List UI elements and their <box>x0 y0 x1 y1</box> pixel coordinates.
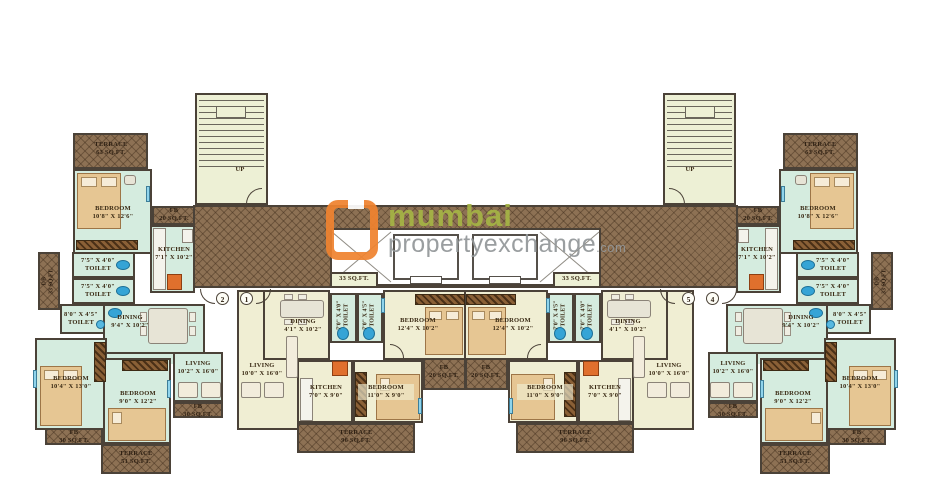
lift-door-left <box>410 276 442 284</box>
fb-30-under-living-left-label: FB30 SQ.FT. <box>178 403 218 419</box>
stove <box>583 361 599 376</box>
wardrobe <box>466 294 516 305</box>
fb-30-under-living-right-label: FB30 SQ.FT. <box>713 403 753 419</box>
stove <box>749 274 764 290</box>
toilet-80-right-label: 8'0" X 4'5"TOILET <box>827 311 873 327</box>
bed <box>108 408 166 441</box>
door-arc-unit-2 <box>200 289 215 304</box>
lift-cabin-left <box>393 234 459 280</box>
toilet-7045-left-label: 7'0" X 4'5"TOILET <box>357 295 383 335</box>
living-right-label: LIVING10'2" X 16'0" <box>710 360 756 376</box>
toilet-7040-right-label: 7'0" X 4'0"TOILET <box>574 295 601 335</box>
bedroom-11-0-right-label: BEDROOM11'0" X 9'0" <box>517 384 573 400</box>
lift-cabin-right <box>472 234 538 280</box>
dining-middle-right-label: DINING4'1" X 10'2" <box>601 318 655 334</box>
bedroom-10-4-left-label: BEDROOM10'4" X 13'0" <box>43 375 99 391</box>
stair-up-label-left: UP <box>228 166 252 174</box>
unit-number-badge-5: 5 <box>682 292 695 305</box>
kitchen-appliance <box>738 229 749 243</box>
wardrobe <box>793 240 855 250</box>
toilet-7040-left-label: 7'0" X 4'0"TOILET <box>330 295 357 335</box>
side-table <box>124 175 136 185</box>
wardrobe <box>415 294 465 305</box>
fb-30-left-edge-label: FB30 SQ.FT. <box>54 429 94 445</box>
kitchen-right-label: KITCHEN7'1" X 10'2" <box>734 246 780 262</box>
bed <box>765 408 823 441</box>
dining-right-label: DINING9'4" X 10'2" <box>779 314 823 330</box>
terrace-63-right-label: TERRACE63 SQ.FT. <box>787 141 853 157</box>
armchair <box>201 382 221 398</box>
window <box>146 186 150 202</box>
armchair <box>241 382 261 398</box>
wardrobe <box>122 360 168 371</box>
bedroom-10-4-right-label: BEDROOM10'4" X 13'0" <box>832 375 888 391</box>
dining-table <box>743 308 783 344</box>
terrace-63-left-label: TERRACE63 SQ.FT. <box>78 141 144 157</box>
armchair <box>670 382 690 398</box>
dining-table <box>280 300 324 318</box>
living-middle-right-label: LIVING10'0" X 16'0" <box>646 362 692 378</box>
unit-number-badge-4: 4 <box>706 292 719 305</box>
bedroom-12-4-right-label: BEDROOM12'4" X 10'2" <box>485 317 541 333</box>
toilet-75-upper-left-label: 7'5" X 4'0"TOILET <box>76 257 120 273</box>
stove <box>332 361 348 376</box>
kitchen-middle-left-label: KITCHEN7'0" X 9'0" <box>302 384 350 400</box>
sofa <box>633 336 645 378</box>
lift-door-right <box>489 276 521 284</box>
window <box>509 398 513 414</box>
armchair <box>647 382 667 398</box>
dining-table <box>148 308 188 344</box>
stair-rail-left <box>216 106 246 118</box>
fb-20-left-label: FB20 SQ.FT. <box>153 207 195 223</box>
bedroom-9-0-left-label: BEDROOM9'0" X 12'2" <box>110 390 166 406</box>
floor-plan: UP UP 33 SQ.FT. 33 SQ.FT. TERRACE63 SQ.F… <box>0 0 931 488</box>
dining-middle-left-label: DINING4'1" X 10'2" <box>276 318 330 334</box>
window <box>33 370 37 388</box>
bedroom-10-8-left-label: BEDROOM10'8" X 12'6" <box>78 205 148 221</box>
door-arc-unit-4 <box>722 289 737 304</box>
stove <box>167 274 182 290</box>
toilet-75-upper-right-label: 7'5" X 4'0"TOILET <box>811 257 855 273</box>
window <box>418 398 422 414</box>
terrace-51-left-label: TERRACE51 SQ.FT. <box>106 450 166 466</box>
toilet-75-lower-right-label: 7'5" X 4'0"TOILET <box>811 283 855 299</box>
lobby-landing-left-label: 33 SQ.FT. <box>331 275 377 283</box>
armchair <box>178 382 198 398</box>
living-left-label: LIVING10'2" X 16'0" <box>175 360 221 376</box>
fb-20-center-right-label: FB20 SQ.FT. <box>466 364 506 380</box>
wardrobe <box>76 240 138 250</box>
fb-20-center-left-label: FB20 SQ.FT. <box>424 364 464 380</box>
stair-up-label-right: UP <box>678 166 702 174</box>
dining-table <box>607 300 651 318</box>
side-table <box>795 175 807 185</box>
kitchen-left-label: KITCHEN7'1" X 10'2" <box>151 246 197 262</box>
armchair <box>733 382 753 398</box>
window <box>781 186 785 202</box>
lobby-landing-right-label: 33 SQ.FT. <box>554 275 600 283</box>
db-left-label: DB33 SQ.FT. <box>36 254 62 308</box>
window <box>760 380 764 398</box>
unit-number-badge-1: 1 <box>240 292 253 305</box>
kitchen-appliance <box>182 229 193 243</box>
bedroom-9-0-right-label: BEDROOM9'0" X 12'2" <box>765 390 821 406</box>
fb-30-right-edge-label: FB30 SQ.FT. <box>837 429 877 445</box>
armchair <box>264 382 284 398</box>
window <box>894 370 898 388</box>
unit-number-badge-2: 2 <box>216 292 229 305</box>
sofa <box>286 336 298 378</box>
wardrobe <box>763 360 809 371</box>
stair-rail-right <box>685 106 715 118</box>
terrace-51-right-label: TERRACE51 SQ.FT. <box>765 450 825 466</box>
bedroom-12-4-left-label: BEDROOM12'4" X 10'2" <box>390 317 446 333</box>
bedroom-10-8-right-label: BEDROOM10'8" X 12'6" <box>783 205 853 221</box>
armchair <box>710 382 730 398</box>
dining-left-label: DINING9'4" X 10'2" <box>108 314 152 330</box>
toilet-7045-right-label: 7'0" X 4'5"TOILET <box>548 295 574 335</box>
window <box>167 380 171 398</box>
fb-20-right-label: FB20 SQ.FT. <box>737 207 779 223</box>
terrace-96-left-label: TERRACE96 SQ.FT. <box>326 429 386 445</box>
living-middle-left-label: LIVING10'0" X 16'0" <box>239 362 285 378</box>
toilet-80-left-label: 8'0" X 4'5"TOILET <box>58 311 104 327</box>
terrace-96-right-label: TERRACE96 SQ.FT. <box>545 429 605 445</box>
db-right-label: DB33 SQ.FT. <box>869 254 895 308</box>
bedroom-11-0-left-label: BEDROOM11'0" X 9'0" <box>358 384 414 400</box>
kitchen-middle-right-label: KITCHEN7'0" X 9'0" <box>581 384 629 400</box>
toilet-75-lower-left-label: 7'5" X 4'0"TOILET <box>76 283 120 299</box>
